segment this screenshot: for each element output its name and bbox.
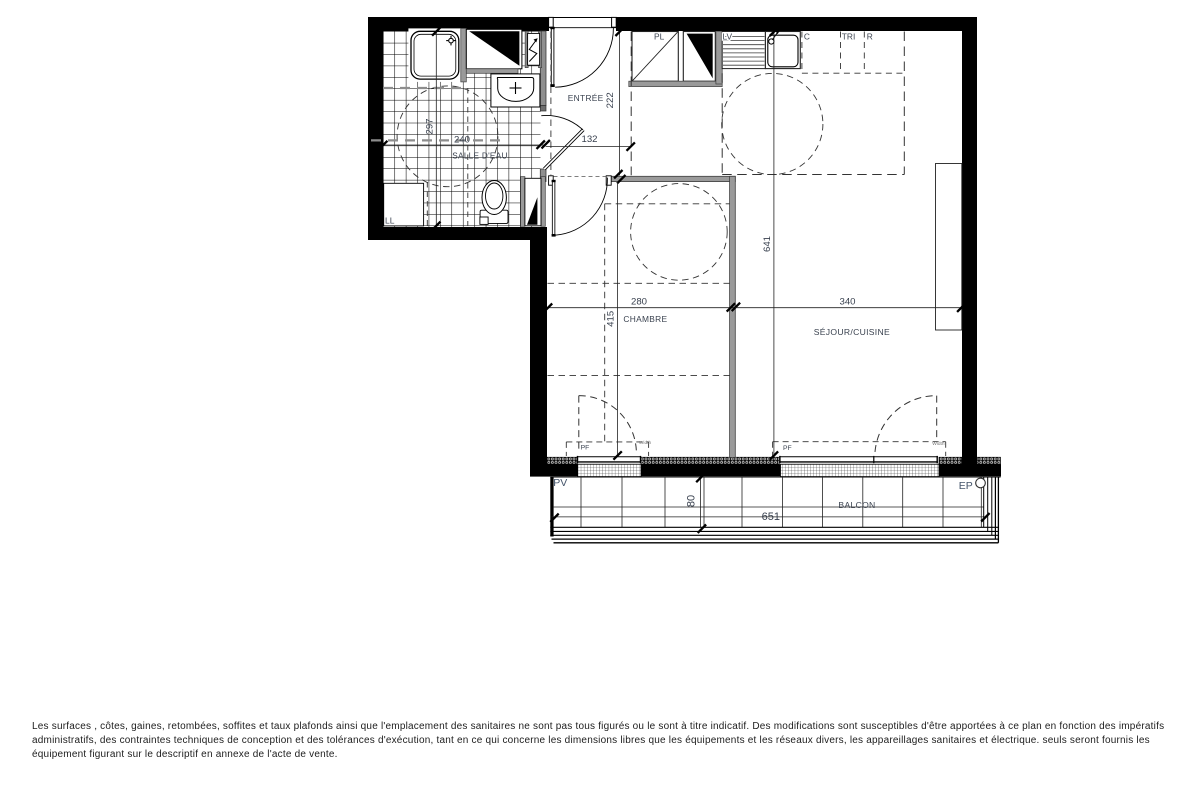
svg-text:SALLE D'EAU: SALLE D'EAU [452,152,507,161]
svg-text:PL: PL [654,31,665,41]
svg-text:LL: LL [385,216,395,226]
svg-text:PV: PV [553,477,567,489]
svg-text:TRI: TRI [842,31,856,41]
svg-text:R: R [867,31,873,41]
svg-text:PF: PF [783,445,792,452]
svg-text:132: 132 [581,134,597,145]
svg-text:415: 415 [605,311,616,327]
svg-text:240: 240 [454,135,470,146]
svg-text:BALCON: BALCON [838,500,875,510]
svg-text:280: 280 [631,296,647,307]
svg-text:Width: Width [932,441,945,447]
svg-text:ENTRÉE: ENTRÉE [568,93,604,103]
svg-text:CHAMBRE: CHAMBRE [623,314,667,324]
svg-text:80: 80 [686,495,698,507]
svg-text:651: 651 [762,511,780,523]
svg-text:Width: Width [639,440,652,446]
svg-text:C: C [804,31,810,41]
svg-text:PF: PF [581,444,590,451]
svg-text:SÉJOUR/CUISINE: SÉJOUR/CUISINE [814,327,890,337]
svg-text:EP: EP [959,480,973,492]
svg-text:641: 641 [762,236,773,252]
svg-text:222: 222 [605,92,616,108]
svg-text:340: 340 [839,296,855,307]
svg-text:LV: LV [723,32,733,42]
svg-text:297: 297 [424,118,435,134]
